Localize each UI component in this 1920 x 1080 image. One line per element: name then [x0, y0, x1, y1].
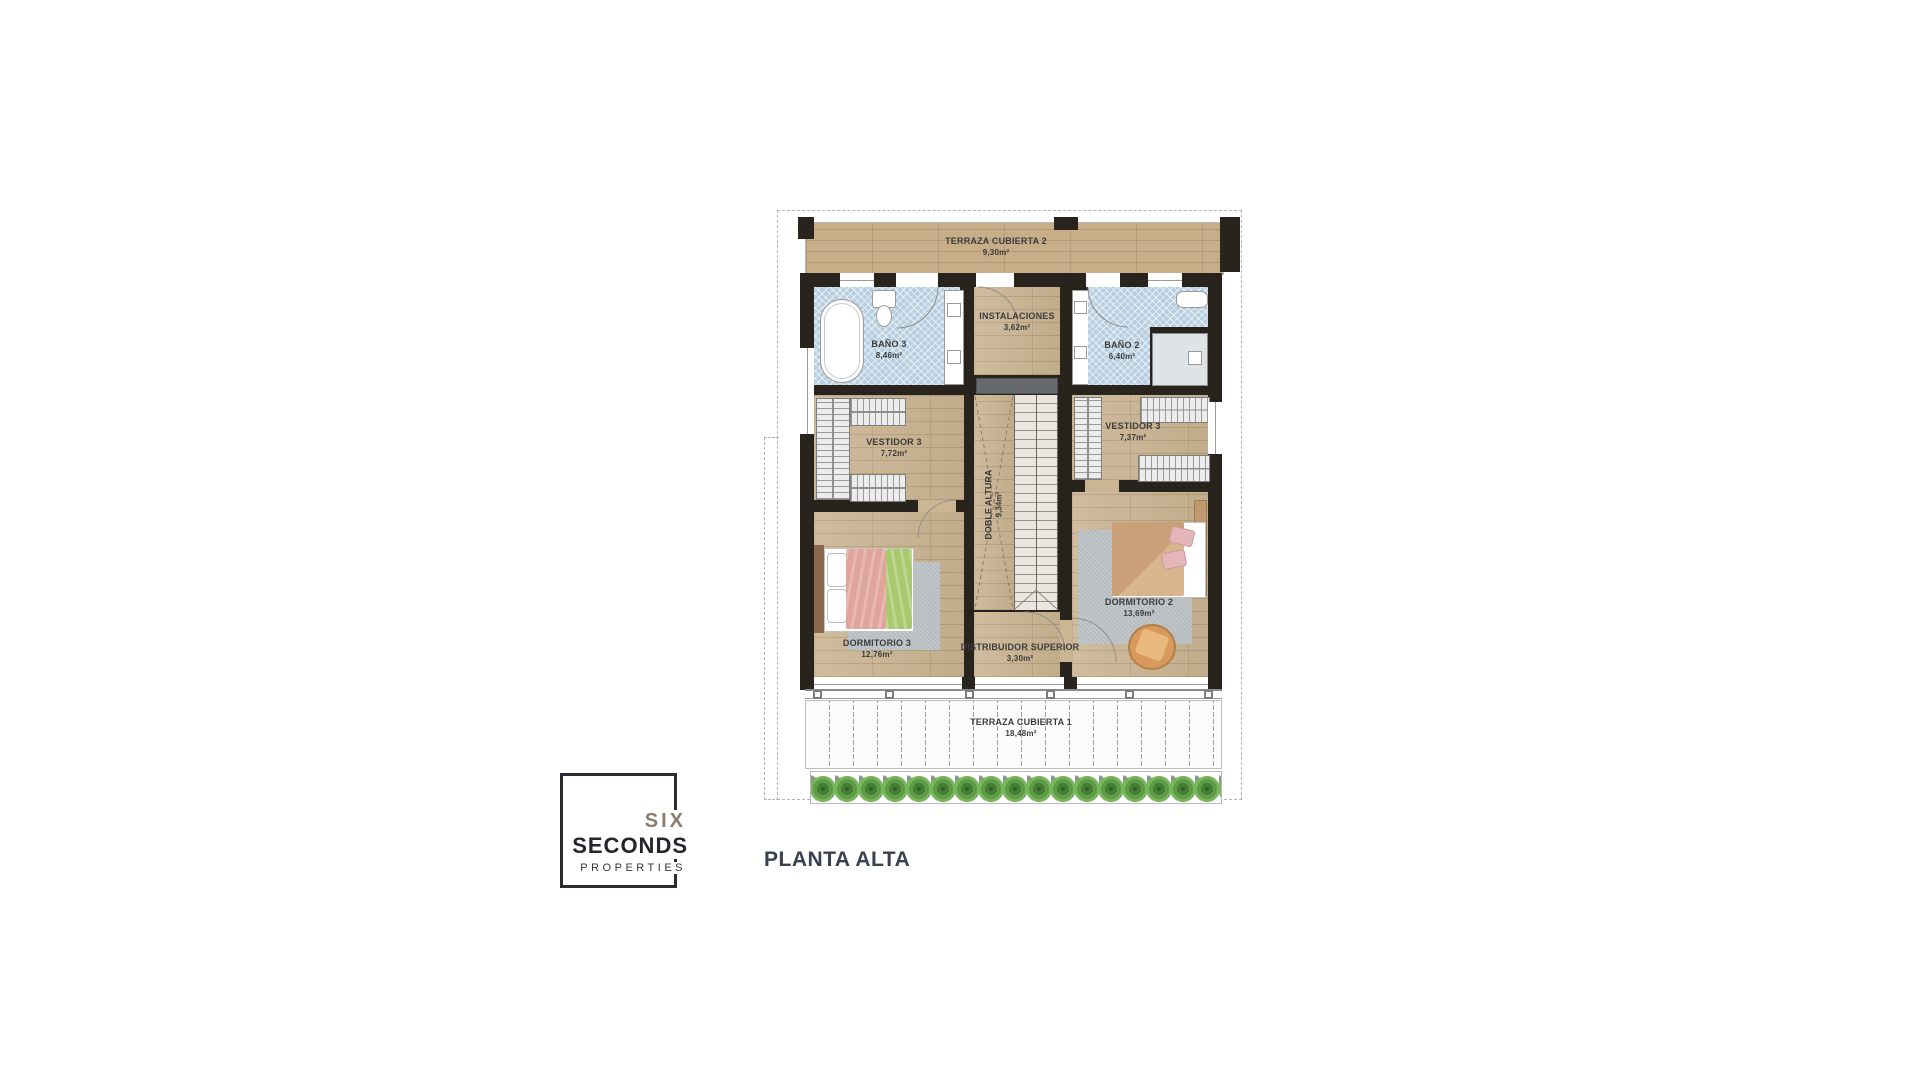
room-name: INSTALACIONES: [957, 311, 1077, 323]
room-area: 13,69m²: [1079, 609, 1199, 619]
railing-post: [885, 690, 894, 699]
door-swing-arc: [897, 287, 938, 328]
room-name: TERRAZA CUBIERTA 1: [941, 717, 1101, 729]
railing-post: [1125, 690, 1134, 699]
room-label-vestidor-der: VESTIDOR 3 7,37m²: [1073, 421, 1193, 443]
room-label-bano-3: BAÑO 3 8,46m²: [839, 339, 939, 361]
terrace-railing: [805, 689, 1222, 699]
room-label-vestidor-izq: VESTIDOR 3 7,72m²: [834, 437, 954, 459]
wall-block-top-middle: [1054, 217, 1078, 230]
room-area: 8,46m²: [839, 351, 939, 361]
brand-word-six: SIX: [626, 810, 686, 833]
room-label-terraza-2: TERRAZA CUBIERTA 2 9,30m²: [896, 236, 1096, 258]
room-area: 18,48m²: [941, 729, 1101, 739]
railing-post: [965, 690, 974, 699]
door-swing-arc: [918, 500, 956, 538]
wall-block-top-left: [798, 217, 814, 239]
brand-word-seconds: SECONDS: [570, 833, 688, 859]
stair-direction-chevron: [1015, 590, 1057, 609]
room-area: 9,30m²: [896, 248, 1096, 258]
railing-post: [1204, 690, 1213, 699]
railing-post: [813, 690, 822, 699]
room-name: VESTIDOR 3: [834, 437, 954, 449]
room-name: DOBLE ALTURA: [983, 470, 994, 540]
room-area: 9,34m²: [995, 470, 1005, 540]
room-name: DISTRIBUIDOR SUPERIOR: [950, 642, 1090, 654]
railing-post: [1046, 690, 1055, 699]
room-label-terraza-1: TERRAZA CUBIERTA 1 18,48m²: [941, 717, 1101, 739]
brand-word-properties: PROPERTIES: [572, 862, 686, 874]
wall-block-top-right: [1220, 217, 1240, 272]
plan-title: PLANTA ALTA: [764, 848, 910, 872]
planter-hedge: [810, 771, 1222, 804]
room-label-dormitorio-3: DORMITORIO 3 12,76m²: [817, 638, 937, 660]
room-name: DORMITORIO 2: [1079, 597, 1199, 609]
plot-boundary-notch: [764, 437, 779, 800]
room-area: 7,72m²: [834, 449, 954, 459]
room-area: 12,76m²: [817, 650, 937, 660]
room-name: BAÑO 3: [839, 339, 939, 351]
room-area: 7,37m²: [1073, 433, 1193, 443]
room-label-distribuidor: DISTRIBUIDOR SUPERIOR 3,30m²: [950, 642, 1090, 664]
room-area: 3,62m²: [957, 323, 1077, 333]
door-swing-arc: [1088, 287, 1128, 327]
room-name: DORMITORIO 3: [817, 638, 937, 650]
room-area: 3,30m²: [950, 654, 1090, 664]
room-label-bano-2: BAÑO 2 6,40m²: [1077, 340, 1167, 362]
room-name: BAÑO 2: [1077, 340, 1167, 352]
room-label-doble-altura: DOBLE ALTURA 9,34m²: [972, 455, 1016, 555]
room-name: VESTIDOR 3: [1073, 421, 1193, 433]
room-name: TERRAZA CUBIERTA 2: [896, 236, 1096, 248]
room-label-dormitorio-2: DORMITORIO 2 13,69m²: [1079, 597, 1199, 619]
page-canvas: TERRAZA CUBIERTA 2 9,30m² BAÑO 3 8,46m² …: [0, 0, 1920, 1080]
room-area: 6,40m²: [1077, 352, 1167, 362]
room-label-instalaciones: INSTALACIONES 3,62m²: [957, 311, 1077, 333]
